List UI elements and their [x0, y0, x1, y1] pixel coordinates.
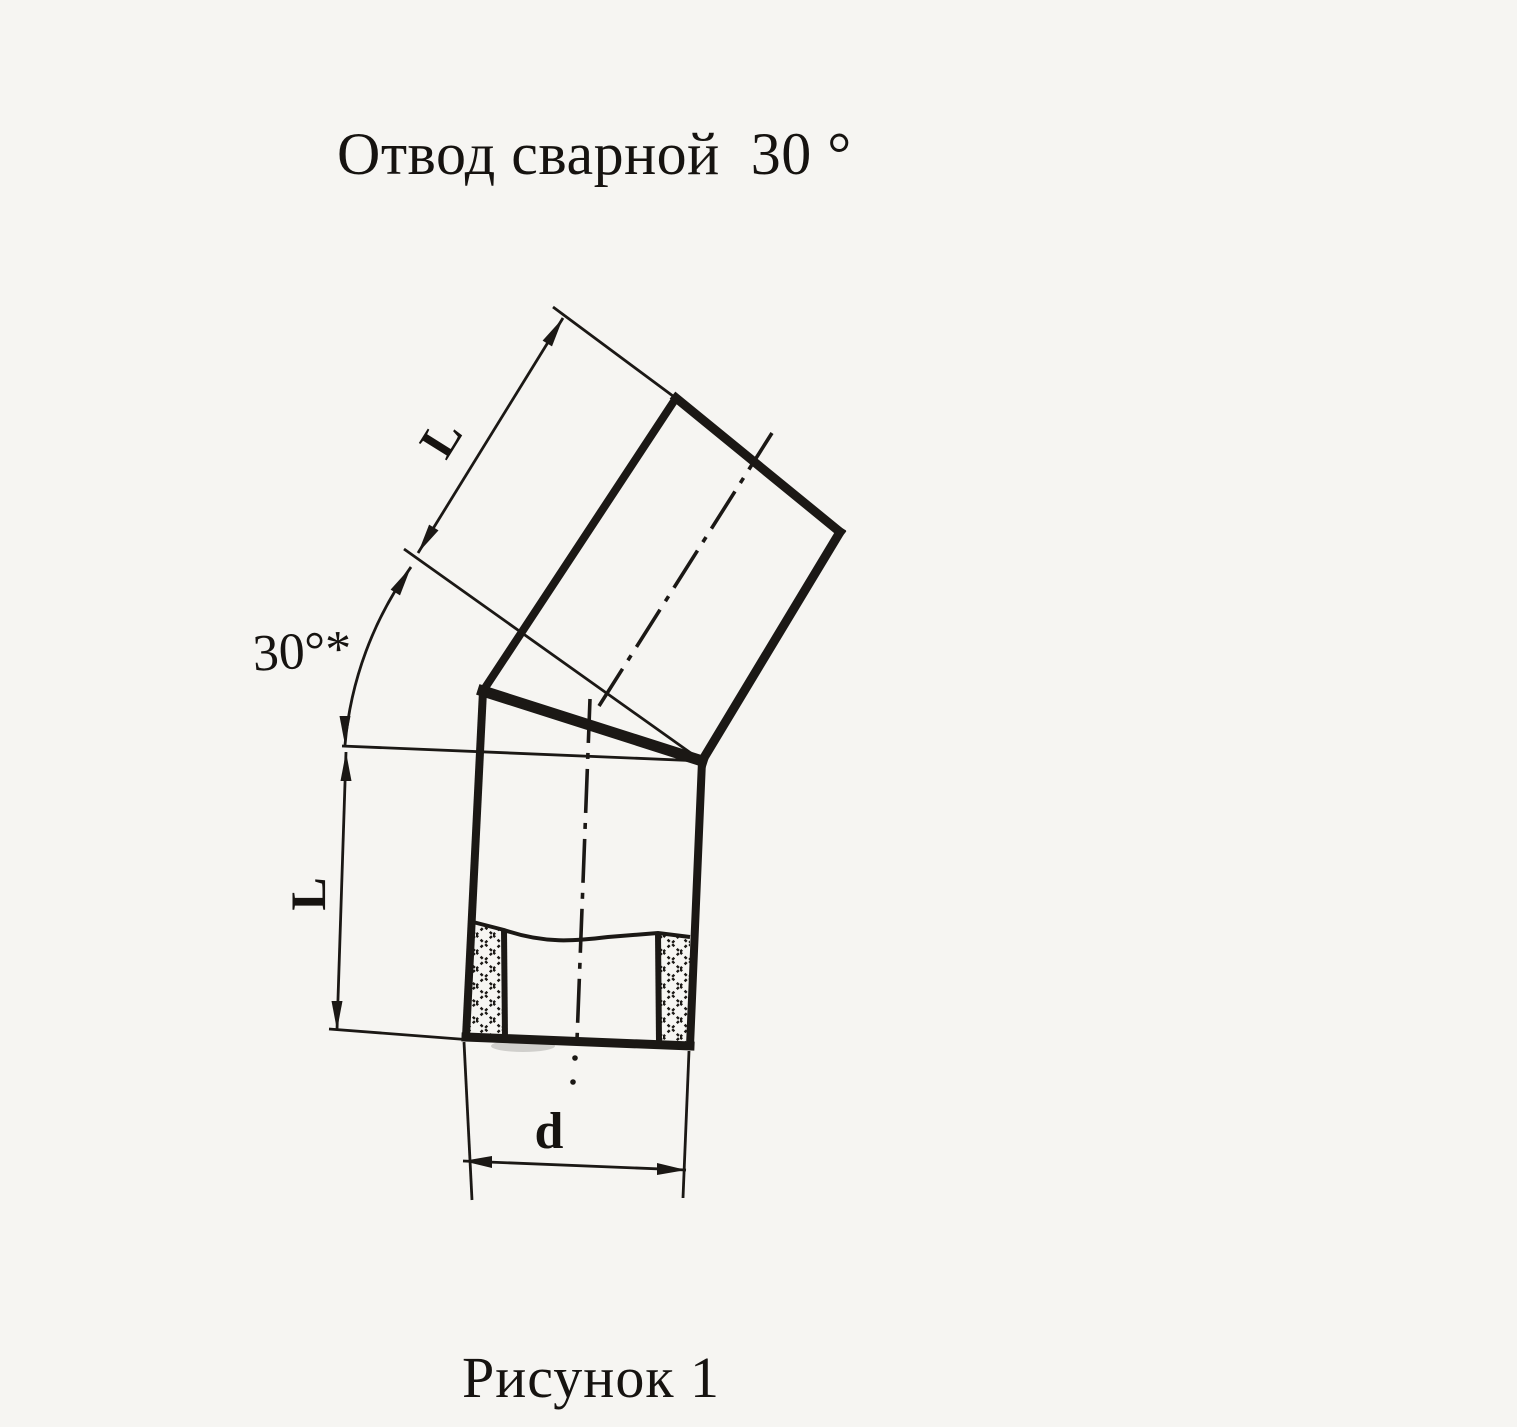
arrow-lower-L-top — [341, 752, 352, 781]
angle-arc-30deg — [345, 567, 411, 745]
label-diameter: d — [535, 1103, 564, 1160]
label-lower-segment-length: L — [280, 877, 336, 910]
upper-pipe-left-edge — [483, 398, 676, 691]
extension-line-d-right — [683, 1051, 689, 1198]
arrow-arc-top — [391, 567, 411, 595]
socket-inner-edge-left — [504, 930, 505, 1039]
centerline-lower-dot-1 — [572, 1055, 578, 1061]
dimension-line-lower-L — [337, 752, 346, 1030]
label-bend-angle: 30°* — [251, 620, 353, 682]
extension-line-bottom-left — [329, 1029, 472, 1040]
arrow-d-right — [657, 1163, 686, 1175]
figure-caption: Рисунок 1 — [462, 1346, 720, 1410]
dimension-line-d — [463, 1161, 686, 1170]
label-upper-segment-length: L — [408, 409, 473, 467]
scanned-page: Отвод сварной 30 ° — [0, 0, 1517, 1427]
extension-line-d-left — [464, 1042, 472, 1200]
arrow-lower-L-bottom — [332, 1001, 343, 1030]
centerline-lower-pipe — [577, 699, 590, 1040]
extension-line-top-face — [553, 307, 681, 402]
upper-pipe-end-face — [676, 398, 840, 532]
upper-pipe-right-edge — [702, 532, 840, 761]
arrow-arc-bottom — [340, 716, 351, 745]
arrow-upper-L-top — [543, 318, 563, 346]
lower-pipe-right-edge — [690, 761, 702, 1046]
arrow-d-left — [463, 1156, 492, 1168]
socket-wall-right-hatch — [658, 933, 690, 1044]
elbow-drawing: L L 30°* d — [0, 0, 1517, 1427]
arrow-upper-L-bottom — [418, 525, 439, 553]
weld-joint-line — [483, 691, 702, 761]
centerline-lower-dot-2 — [570, 1079, 576, 1085]
socket-inner-edge-right — [658, 933, 659, 1042]
